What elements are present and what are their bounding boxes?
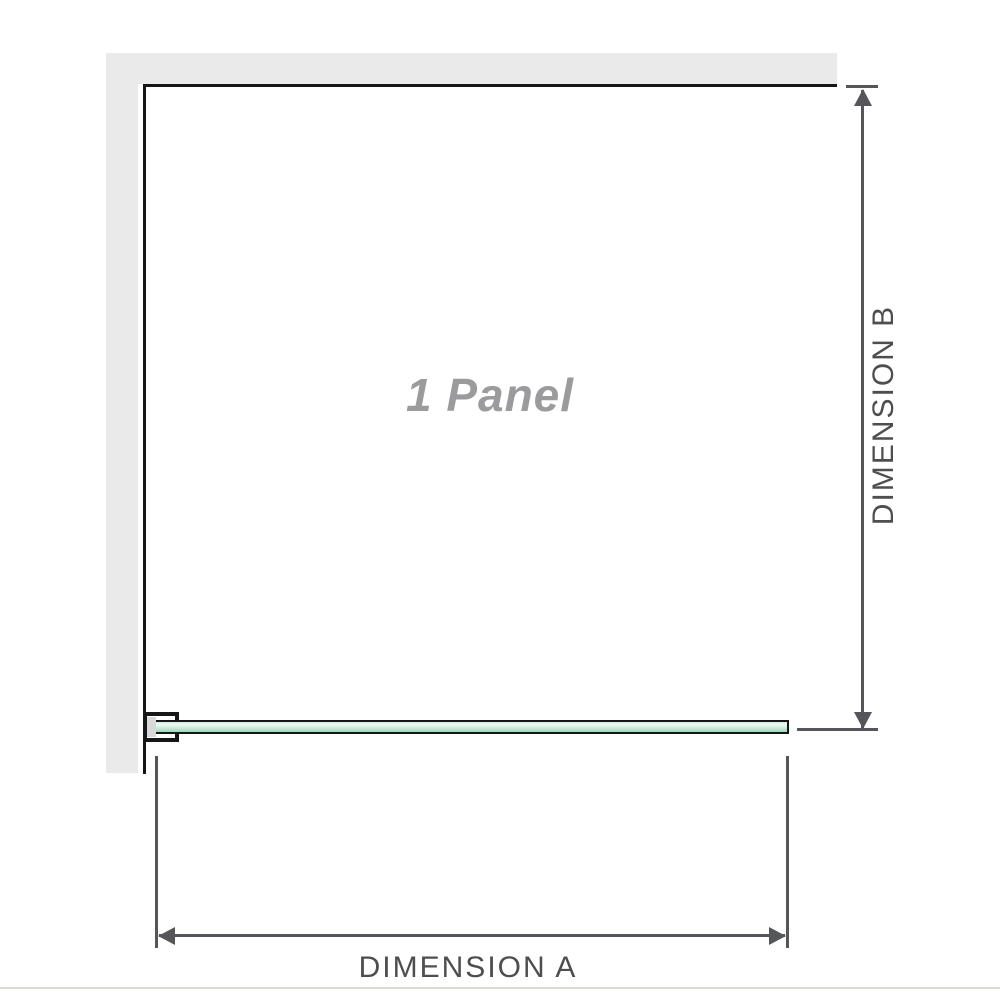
arrowhead-down-icon	[854, 712, 872, 729]
arrowhead-left-icon	[158, 927, 175, 945]
wall-top	[106, 53, 837, 84]
glass-panel	[156, 720, 789, 734]
panel-count-label: 1 Panel	[143, 368, 837, 422]
dim-b-tick-top	[846, 85, 878, 88]
dim-a-extension-right	[786, 756, 789, 948]
dim-a-line	[159, 934, 785, 937]
dimension-b-label: DIMENSION B	[868, 265, 900, 565]
panel-outline-top	[143, 84, 837, 87]
wall-left	[106, 53, 138, 773]
dimension-a-label: DIMENSION A	[143, 951, 793, 985]
panel-outline-left	[143, 84, 146, 774]
arrowhead-right-icon	[769, 927, 786, 945]
panel-diagram: 1 Panel DIMENSION B DIMENSION A	[0, 0, 1000, 1000]
bracket-insert	[147, 717, 156, 737]
dim-a-extension-left	[155, 756, 158, 948]
bottom-divider	[0, 987, 1000, 989]
dim-b-line	[861, 90, 864, 729]
arrowhead-up-icon	[854, 89, 872, 106]
